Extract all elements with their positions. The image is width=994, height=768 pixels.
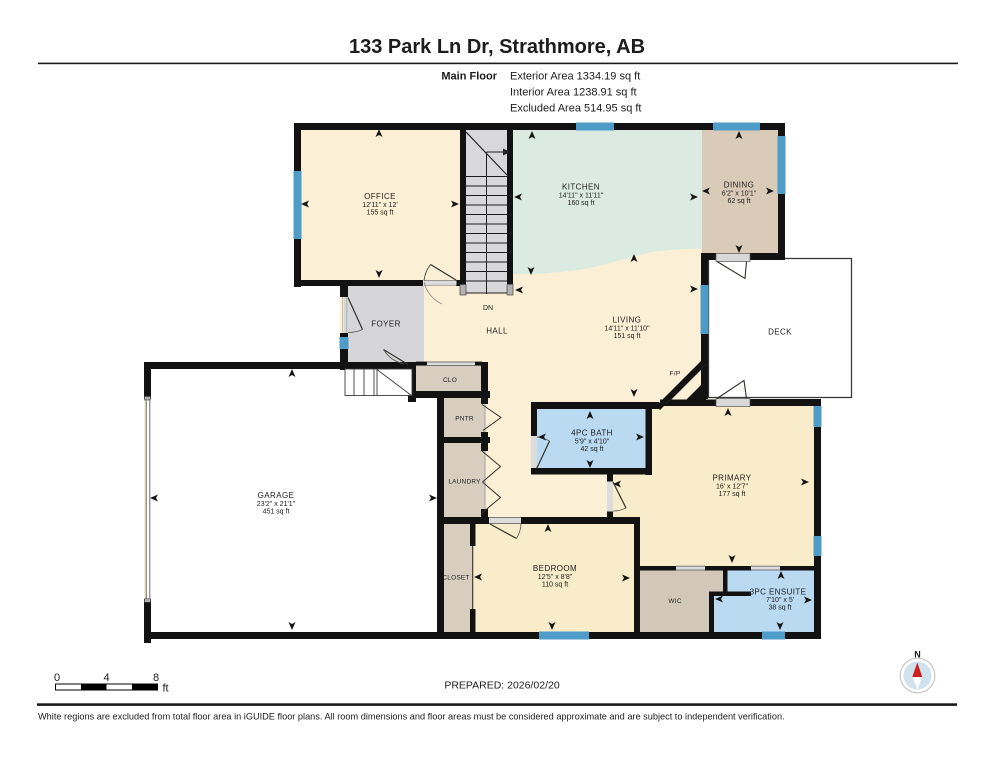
svg-text:7'10" x 5': 7'10" x 5' bbox=[766, 597, 794, 604]
svg-text:CLO: CLO bbox=[443, 377, 457, 384]
svg-text:151 sq ft: 151 sq ft bbox=[614, 333, 641, 340]
svg-text:ft: ft bbox=[163, 683, 169, 695]
svg-text:160 sq ft: 160 sq ft bbox=[568, 200, 595, 207]
svg-text:GARAGE: GARAGE bbox=[258, 491, 295, 500]
svg-text:14'11" x 11'10": 14'11" x 11'10" bbox=[604, 326, 650, 333]
svg-text:F/P: F/P bbox=[670, 371, 681, 378]
svg-text:DN: DN bbox=[483, 305, 493, 312]
svg-text:4: 4 bbox=[103, 672, 109, 684]
svg-text:12'5" x 8'8": 12'5" x 8'8" bbox=[538, 574, 573, 581]
svg-text:23'2" x 21'1": 23'2" x 21'1" bbox=[257, 501, 296, 508]
svg-text:BEDROOM: BEDROOM bbox=[533, 564, 577, 573]
svg-text:LAUNDRY: LAUNDRY bbox=[448, 479, 481, 486]
svg-text:12'11" x 12': 12'11" x 12' bbox=[362, 202, 397, 209]
svg-text:0: 0 bbox=[54, 672, 60, 684]
svg-text:42 sq ft: 42 sq ft bbox=[581, 446, 604, 453]
svg-text:KITCHEN: KITCHEN bbox=[562, 183, 600, 192]
svg-text:PRIMARY: PRIMARY bbox=[712, 474, 751, 483]
svg-text:3PC ENSUITE: 3PC ENSUITE bbox=[750, 588, 807, 597]
svg-text:177 sq ft: 177 sq ft bbox=[719, 491, 746, 498]
svg-text:16' x 12'7": 16' x 12'7" bbox=[716, 484, 749, 491]
svg-text:OFFICE: OFFICE bbox=[364, 192, 396, 201]
svg-text:Excluded Area 514.95 sq ft: Excluded Area 514.95 sq ft bbox=[510, 103, 641, 115]
svg-text:PREPARED: 2026/02/20: PREPARED: 2026/02/20 bbox=[444, 680, 560, 692]
svg-text:CLOSET: CLOSET bbox=[442, 575, 469, 582]
svg-text:451 sq ft: 451 sq ft bbox=[263, 509, 290, 516]
svg-text:FOYER: FOYER bbox=[371, 320, 401, 329]
svg-text:WIC: WIC bbox=[668, 598, 681, 605]
svg-text:Interior Area 1238.91 sq ft: Interior Area 1238.91 sq ft bbox=[510, 87, 637, 99]
svg-text:DINING: DINING bbox=[724, 181, 754, 190]
svg-text:62 sq ft: 62 sq ft bbox=[728, 198, 751, 205]
svg-text:PNTR: PNTR bbox=[455, 416, 474, 423]
svg-text:LIVING: LIVING bbox=[613, 316, 642, 325]
svg-text:38 sq ft: 38 sq ft bbox=[769, 605, 792, 612]
svg-text:Main Floor: Main Floor bbox=[441, 71, 497, 83]
svg-text:N: N bbox=[914, 650, 921, 660]
svg-text:6'2" x 10'1": 6'2" x 10'1" bbox=[722, 191, 757, 198]
svg-text:110 sq ft: 110 sq ft bbox=[542, 582, 568, 589]
svg-text:133 Park Ln Dr, Strathmore, AB: 133 Park Ln Dr, Strathmore, AB bbox=[349, 36, 645, 58]
svg-text:Exterior Area 1334.19 sq ft: Exterior Area 1334.19 sq ft bbox=[510, 71, 640, 83]
svg-text:White regions are excluded fro: White regions are excluded from total fl… bbox=[38, 712, 785, 722]
svg-text:DECK: DECK bbox=[768, 328, 792, 337]
svg-text:155 sq ft: 155 sq ft bbox=[367, 210, 394, 217]
svg-text:8: 8 bbox=[153, 672, 159, 684]
svg-text:HALL: HALL bbox=[486, 327, 508, 336]
svg-text:4PC BATH: 4PC BATH bbox=[571, 429, 613, 438]
svg-text:14'11" x 11'11": 14'11" x 11'11" bbox=[559, 193, 604, 200]
svg-text:5'9" x 4'10": 5'9" x 4'10" bbox=[575, 439, 610, 446]
